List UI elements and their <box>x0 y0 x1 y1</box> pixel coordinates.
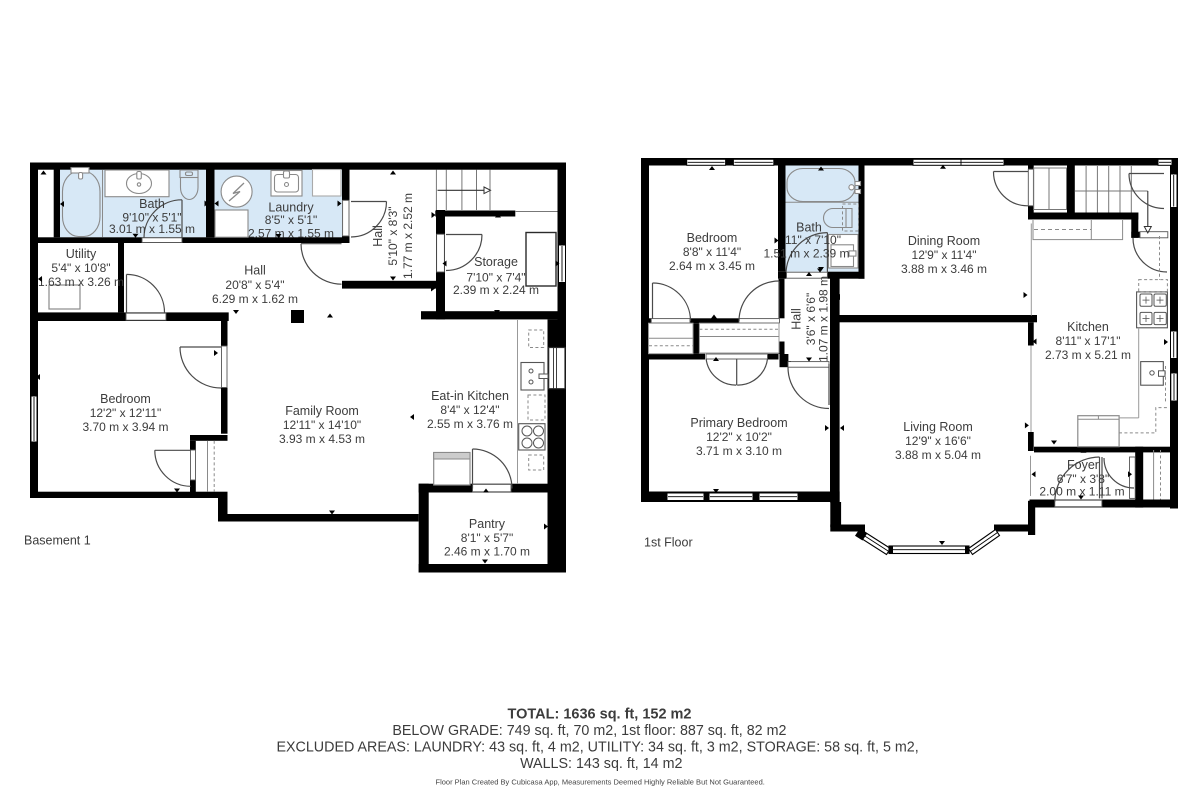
svg-text:Basement 1: Basement 1 <box>24 534 91 548</box>
svg-text:12'9" x 11'4": 12'9" x 11'4" <box>912 248 977 262</box>
svg-text:Utility: Utility <box>66 247 97 261</box>
svg-text:1.51 m x 2.39 m: 1.51 m x 2.39 m <box>763 247 849 261</box>
svg-text:Bedroom: Bedroom <box>100 392 151 406</box>
svg-text:Eat-in Kitchen: Eat-in Kitchen <box>431 389 509 403</box>
svg-text:BELOW GRADE: 749 sq. ft, 70 m2: BELOW GRADE: 749 sq. ft, 70 m2, 1st floo… <box>392 723 786 739</box>
svg-text:8'5" x 5'1": 8'5" x 5'1" <box>265 213 317 227</box>
svg-text:Bath: Bath <box>139 197 165 211</box>
svg-text:Primary Bedroom: Primary Bedroom <box>690 416 787 430</box>
svg-text:Hall: Hall <box>790 308 804 330</box>
svg-text:20'8" x 5'4": 20'8" x 5'4" <box>225 278 284 292</box>
svg-text:Floor Plan Created By Cubicasa: Floor Plan Created By Cubicasa App, Meas… <box>436 778 765 787</box>
svg-text:Living Room: Living Room <box>903 420 972 434</box>
svg-text:1.63 m x 3.26 m: 1.63 m x 3.26 m <box>38 275 124 289</box>
svg-text:1st Floor: 1st Floor <box>644 536 693 550</box>
svg-text:Kitchen: Kitchen <box>1067 320 1109 334</box>
svg-text:3.70 m x 3.94 m: 3.70 m x 3.94 m <box>82 420 168 434</box>
svg-text:12'11" x 14'10": 12'11" x 14'10" <box>283 418 361 432</box>
svg-text:Hall: Hall <box>244 264 266 278</box>
svg-text:8'1" x 5'7": 8'1" x 5'7" <box>461 531 513 545</box>
svg-text:WALLS: 143 sq. ft, 14 m2: WALLS: 143 sq. ft, 14 m2 <box>520 756 682 772</box>
svg-text:2.64 m x 3.45 m: 2.64 m x 3.45 m <box>669 259 755 273</box>
svg-text:8'11" x 17'1": 8'11" x 17'1" <box>1056 334 1121 348</box>
svg-text:2.57 m x 1.55 m: 2.57 m x 1.55 m <box>248 226 334 240</box>
svg-text:3.01 m x 1.55 m: 3.01 m x 1.55 m <box>109 222 195 236</box>
svg-text:Pantry: Pantry <box>469 517 506 531</box>
svg-text:8'4" x 12'4": 8'4" x 12'4" <box>440 403 499 417</box>
svg-text:Bedroom: Bedroom <box>687 231 738 245</box>
svg-text:1.77 m x 2.52 m: 1.77 m x 2.52 m <box>401 193 415 279</box>
svg-text:12'9" x 16'6": 12'9" x 16'6" <box>905 434 971 448</box>
svg-text:5'10" x 8'3": 5'10" x 8'3" <box>386 206 400 265</box>
svg-text:TOTAL: 1636 sq. ft, 152 m2: TOTAL: 1636 sq. ft, 152 m2 <box>508 707 692 723</box>
svg-text:5'4" x 10'8": 5'4" x 10'8" <box>51 261 110 275</box>
svg-text:3.71 m x 3.10 m: 3.71 m x 3.10 m <box>696 444 782 458</box>
svg-text:11" x 7'10": 11" x 7'10" <box>785 233 841 247</box>
svg-text:12'2" x 12'11": 12'2" x 12'11" <box>90 406 162 420</box>
svg-text:3.88 m x 5.04 m: 3.88 m x 5.04 m <box>895 448 981 462</box>
svg-text:Family Room: Family Room <box>285 404 359 418</box>
svg-text:EXCLUDED AREAS: LAUNDRY: 43 sq: EXCLUDED AREAS: LAUNDRY: 43 sq. ft, 4 m2… <box>276 740 918 756</box>
svg-text:Foyer: Foyer <box>1067 458 1099 472</box>
svg-text:Dining Room: Dining Room <box>908 234 980 248</box>
svg-text:6.29 m x 1.62 m: 6.29 m x 1.62 m <box>212 292 298 306</box>
svg-text:12'2" x 10'2": 12'2" x 10'2" <box>706 430 772 444</box>
svg-text:8'8" x 11'4": 8'8" x 11'4" <box>683 245 741 259</box>
svg-text:2.46 m x 1.70 m: 2.46 m x 1.70 m <box>444 545 530 559</box>
svg-text:2.73 m x 5.21 m: 2.73 m x 5.21 m <box>1045 348 1131 362</box>
svg-text:Storage: Storage <box>474 255 518 269</box>
svg-text:2.55 m x 3.76 m: 2.55 m x 3.76 m <box>427 417 513 431</box>
svg-text:1.07 m x 1.98 m: 1.07 m x 1.98 m <box>817 276 831 362</box>
svg-text:2.39 m x 2.24 m: 2.39 m x 2.24 m <box>453 283 539 297</box>
svg-text:Hall: Hall <box>371 225 385 247</box>
svg-text:3.93 m x 4.53 m: 3.93 m x 4.53 m <box>279 432 365 446</box>
svg-text:3.88 m x 3.46 m: 3.88 m x 3.46 m <box>901 262 987 276</box>
